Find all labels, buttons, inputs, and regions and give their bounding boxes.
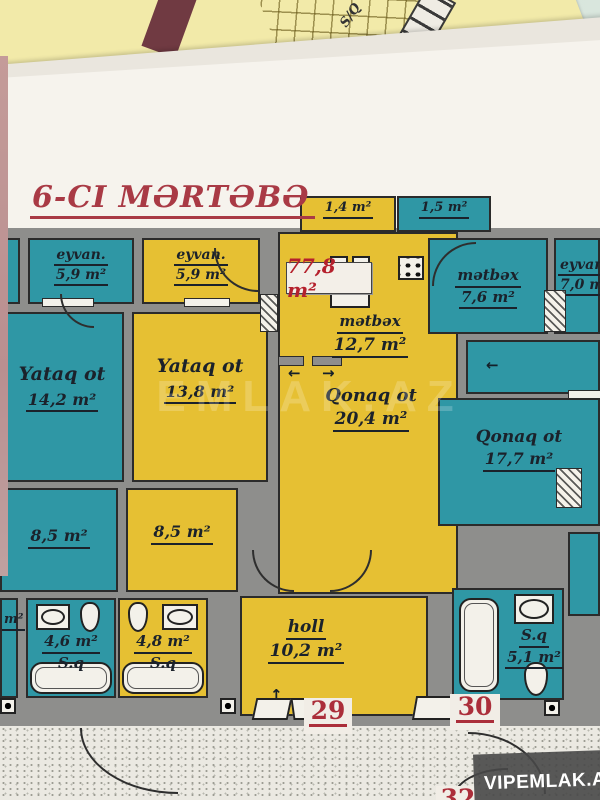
floor-title: 6-CI MƏRTƏBƏ bbox=[30, 180, 315, 219]
window-icon bbox=[184, 298, 230, 307]
sink-icon bbox=[36, 604, 70, 630]
room-85-left: 8,5 m² bbox=[0, 488, 118, 592]
entry-door-icon bbox=[544, 700, 560, 716]
stairs-icon bbox=[252, 698, 293, 720]
room-label: 1,4 m² bbox=[302, 200, 394, 219]
toilet-icon bbox=[80, 602, 100, 632]
unit-number-30: 30 bbox=[450, 694, 500, 730]
stove-icon bbox=[398, 256, 424, 280]
room-bath-left: 4,6 m² S.q bbox=[26, 598, 116, 698]
ghost-watermark: EMLAK.AZ bbox=[90, 372, 530, 422]
total-area-badge: 77,8 m² bbox=[286, 262, 372, 294]
sheet-left-edge bbox=[0, 56, 8, 576]
floor-plan-photo: S/Q 6-CI MƏRTƏBƏ 1,4 m² 1,5 m² eyvan. 5,… bbox=[0, 0, 600, 800]
room-85-mid: 8,5 m² bbox=[126, 488, 238, 592]
entry-door-icon bbox=[0, 698, 16, 714]
column-hatched bbox=[260, 294, 278, 332]
room-bath-mid: 4,8 m² S.q bbox=[118, 598, 208, 698]
column-hatched bbox=[556, 468, 582, 508]
room-label: 1,5 m² bbox=[399, 200, 489, 219]
window-icon bbox=[568, 390, 600, 399]
room-bath-right: S.q 5,1 m² bbox=[452, 588, 564, 700]
entry-door-icon bbox=[220, 698, 236, 714]
sink-icon bbox=[162, 604, 198, 630]
room-small-teal: 1,5 m² bbox=[397, 196, 491, 232]
toilet-icon bbox=[128, 602, 148, 632]
room-edge-fragment: m² bbox=[0, 598, 18, 698]
room-label-metbex-mid: mətbəx 12,7 m² bbox=[300, 312, 440, 358]
brand-watermark: VIPEMLAK.AZ bbox=[473, 749, 600, 800]
column-hatched bbox=[544, 290, 566, 332]
sink-icon bbox=[514, 594, 554, 624]
unit-number-29: 29 bbox=[304, 698, 352, 734]
room-strip-right bbox=[568, 532, 600, 616]
